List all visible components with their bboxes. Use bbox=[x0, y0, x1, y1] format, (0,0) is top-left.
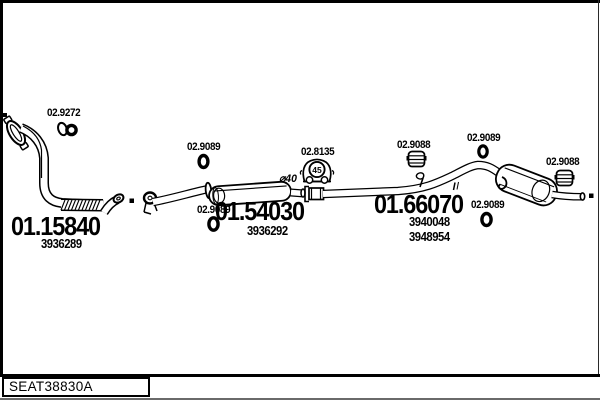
pipe-diameter-annotation: ⌀40 bbox=[279, 173, 297, 186]
part-ref-front-pipe: 3936289 bbox=[41, 237, 82, 251]
hardware-code-mount-2: 02.9088 bbox=[546, 156, 579, 169]
part-number-center-muffler: 01.54030 bbox=[215, 197, 304, 227]
bracket-badge: 45 bbox=[312, 166, 322, 176]
front-pipe-end bbox=[104, 193, 125, 213]
drawing-code: SEAT38830A bbox=[9, 379, 93, 394]
part-ref-rear-silencer-1: 3940048 bbox=[409, 215, 450, 229]
exhaust-parts-diagram: 02.9272 02.9089 02.9089 02.8135 02.9088 … bbox=[0, 0, 600, 400]
title-block: SEAT38830A bbox=[2, 377, 150, 398]
page-bottom-edge bbox=[0, 398, 600, 400]
hardware-code-mount-1: 02.9088 bbox=[397, 139, 430, 152]
rubber-mount-icon bbox=[555, 171, 575, 186]
hardware-code-bracket: 02.8135 bbox=[301, 146, 334, 159]
clamp-sleeve bbox=[309, 188, 324, 200]
frame-tick-mark bbox=[0, 113, 7, 117]
frame-border-left bbox=[0, 0, 3, 376]
hardware-code-ring-1: 02.9089 bbox=[187, 141, 220, 154]
hardware-code-clamp: 02.9272 bbox=[47, 107, 80, 120]
part-ref-rear-silencer-2: 3948954 bbox=[409, 230, 450, 244]
hanger-ring-icon bbox=[199, 156, 208, 168]
frame-border-top bbox=[0, 0, 600, 3]
frame-border-right bbox=[598, 0, 600, 376]
flex-section bbox=[61, 200, 103, 210]
rubber-mount-icon bbox=[407, 152, 427, 167]
part-ref-center-muffler: 3936292 bbox=[247, 224, 288, 238]
joint-dot bbox=[130, 199, 135, 204]
tail-pipe bbox=[552, 193, 594, 200]
hanger-ring-icon bbox=[482, 214, 491, 226]
hardware-code-ring-4: 02.9089 bbox=[471, 199, 504, 212]
hardware-code-ring-3: 02.9089 bbox=[467, 132, 500, 145]
hanger-ring-icon bbox=[479, 146, 487, 157]
clamp-icon bbox=[57, 122, 77, 137]
